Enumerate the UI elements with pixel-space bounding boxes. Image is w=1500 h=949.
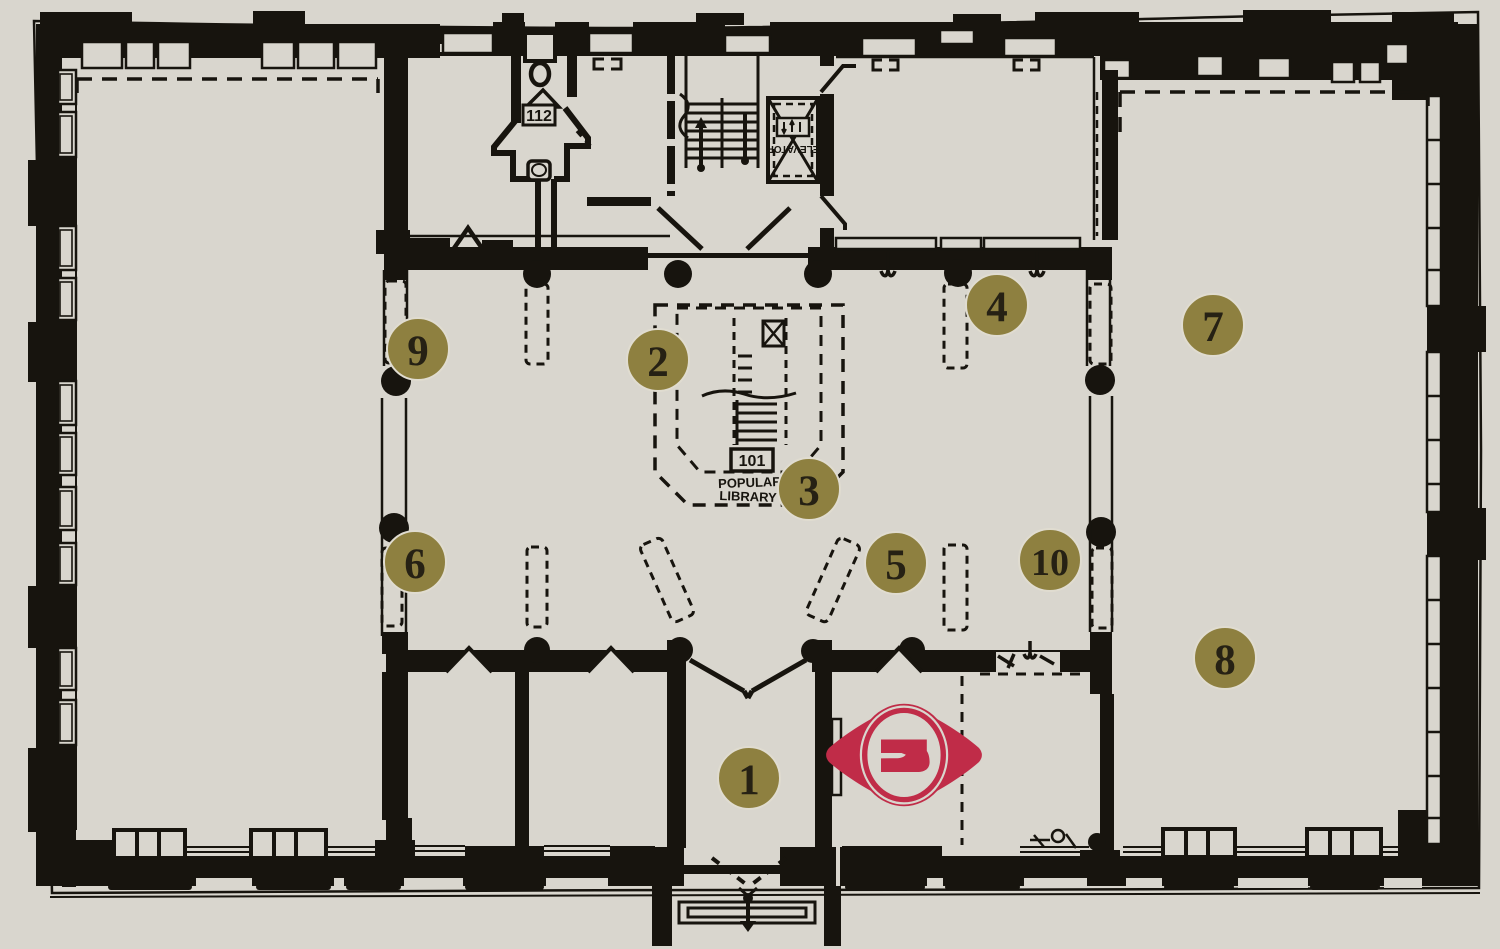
svg-text:LIBRARY: LIBRARY: [719, 488, 777, 505]
svg-text:ELEVATOR: ELEVATOR: [766, 143, 820, 154]
svg-text:9: 9: [407, 328, 429, 375]
svg-text:2: 2: [647, 339, 669, 386]
svg-text:112: 112: [526, 108, 552, 125]
svg-text:5: 5: [885, 542, 907, 589]
svg-text:3: 3: [798, 468, 820, 515]
svg-text:7: 7: [1202, 304, 1224, 351]
svg-text:4: 4: [986, 284, 1008, 331]
svg-text:101: 101: [739, 453, 766, 470]
svg-text:6: 6: [404, 541, 426, 588]
svg-text:1: 1: [738, 757, 760, 804]
svg-text:10: 10: [1031, 542, 1069, 584]
svg-text:8: 8: [1214, 637, 1236, 684]
